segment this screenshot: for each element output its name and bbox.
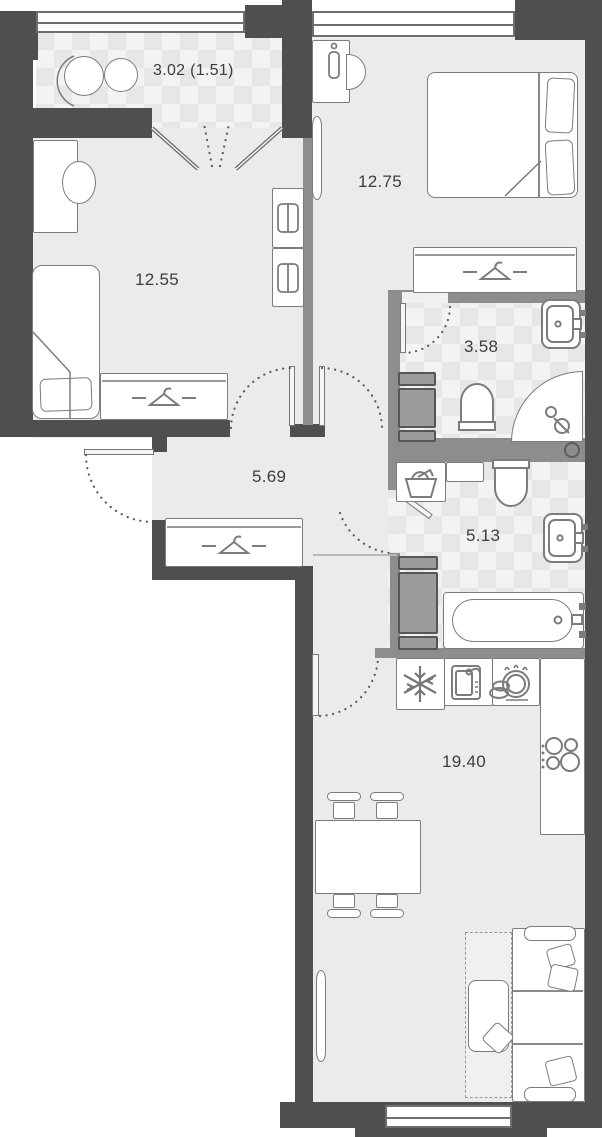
sink-icon — [542, 300, 585, 348]
room-label-balcony: 3.02 (1.51) — [153, 62, 234, 80]
toilet-icon — [493, 460, 529, 506]
room-label-1255: 12.55 — [135, 270, 179, 290]
kitchen-door-arc — [320, 658, 378, 716]
bathroom-513-door-arc — [340, 513, 390, 553]
bathtub-faucet-icon — [555, 604, 586, 637]
shower-drain-icon — [546, 407, 569, 433]
room-label-569: 5.69 — [252, 467, 286, 487]
room-label-1275: 12.75 — [358, 172, 402, 192]
bed-fold — [505, 161, 541, 196]
room-1255-door-arc — [231, 368, 291, 428]
desk-lamp-icon — [329, 44, 339, 79]
balcony-door-leaves — [152, 128, 282, 169]
chair-backrest — [57, 56, 74, 106]
hanger-icon — [202, 537, 266, 553]
burners-icon — [542, 738, 580, 771]
entrance-door-arc — [86, 455, 153, 522]
hanger-icon — [463, 263, 527, 279]
balcony-door-arc — [220, 124, 229, 166]
room-label-513: 5.13 — [466, 526, 500, 546]
bedroom-door-arc — [322, 368, 382, 428]
dishes-icon — [490, 666, 529, 701]
room-label-358: 3.58 — [464, 337, 498, 357]
toilet-icon — [459, 384, 495, 430]
bathroom-358-door-arc — [404, 307, 450, 353]
kitchen-sink-icon — [452, 666, 480, 699]
room-label-1940: 19.40 — [442, 752, 486, 772]
sink-icon — [544, 514, 587, 562]
hanger-icon — [132, 389, 196, 405]
drawer-icon — [278, 204, 298, 292]
floor-plan: 3.02 (1.51) 12.55 12.75 3.58 5.69 5.13 1… — [0, 0, 602, 1137]
balcony-door-arc — [204, 124, 212, 166]
laundry-basket-icon — [406, 470, 436, 497]
plan-detail-overlay — [0, 0, 602, 1137]
snowflake-icon — [404, 666, 436, 702]
bed-fold — [33, 332, 70, 418]
